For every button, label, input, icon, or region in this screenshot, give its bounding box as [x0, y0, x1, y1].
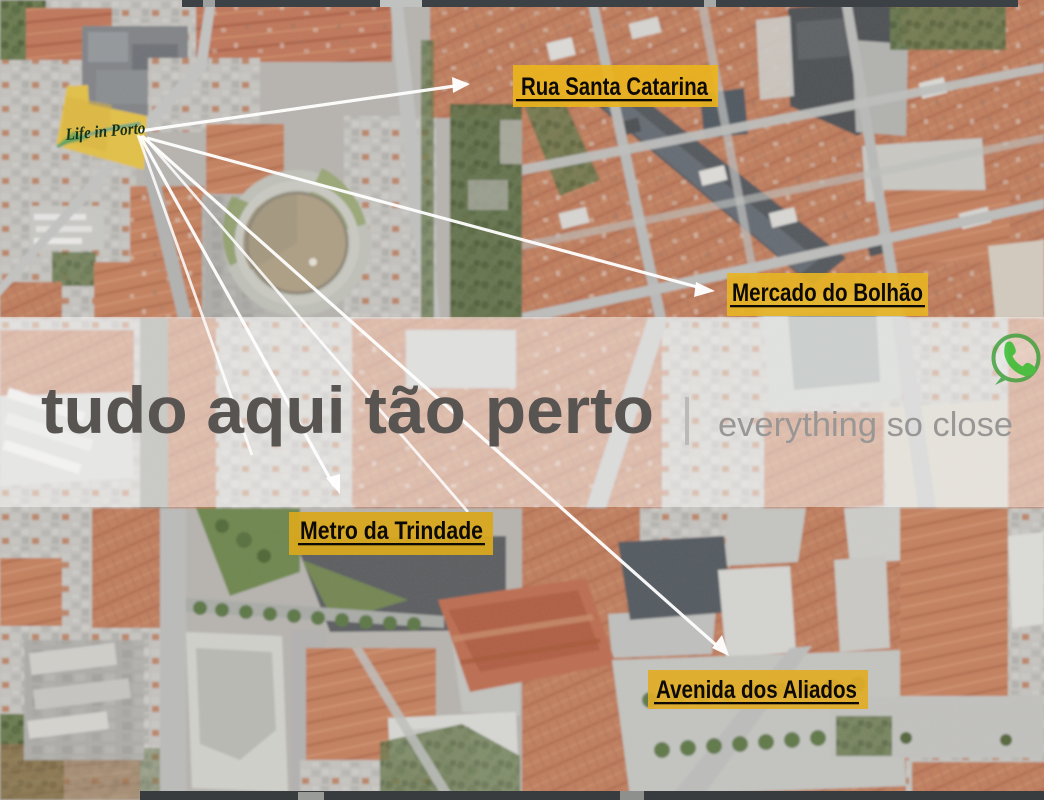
svg-text:tudo aqui tão perto: tudo aqui tão perto: [41, 373, 654, 447]
svg-text:Avenida dos Aliados: Avenida dos Aliados: [656, 676, 857, 704]
svg-text:everything so close: everything so close: [718, 406, 1013, 444]
svg-text:Mercado do Bolhão: Mercado do Bolhão: [732, 279, 923, 307]
svg-text:Rua Santa Catarina: Rua Santa Catarina: [521, 73, 709, 101]
svg-text:Metro da Trindade: Metro da Trindade: [300, 517, 483, 545]
